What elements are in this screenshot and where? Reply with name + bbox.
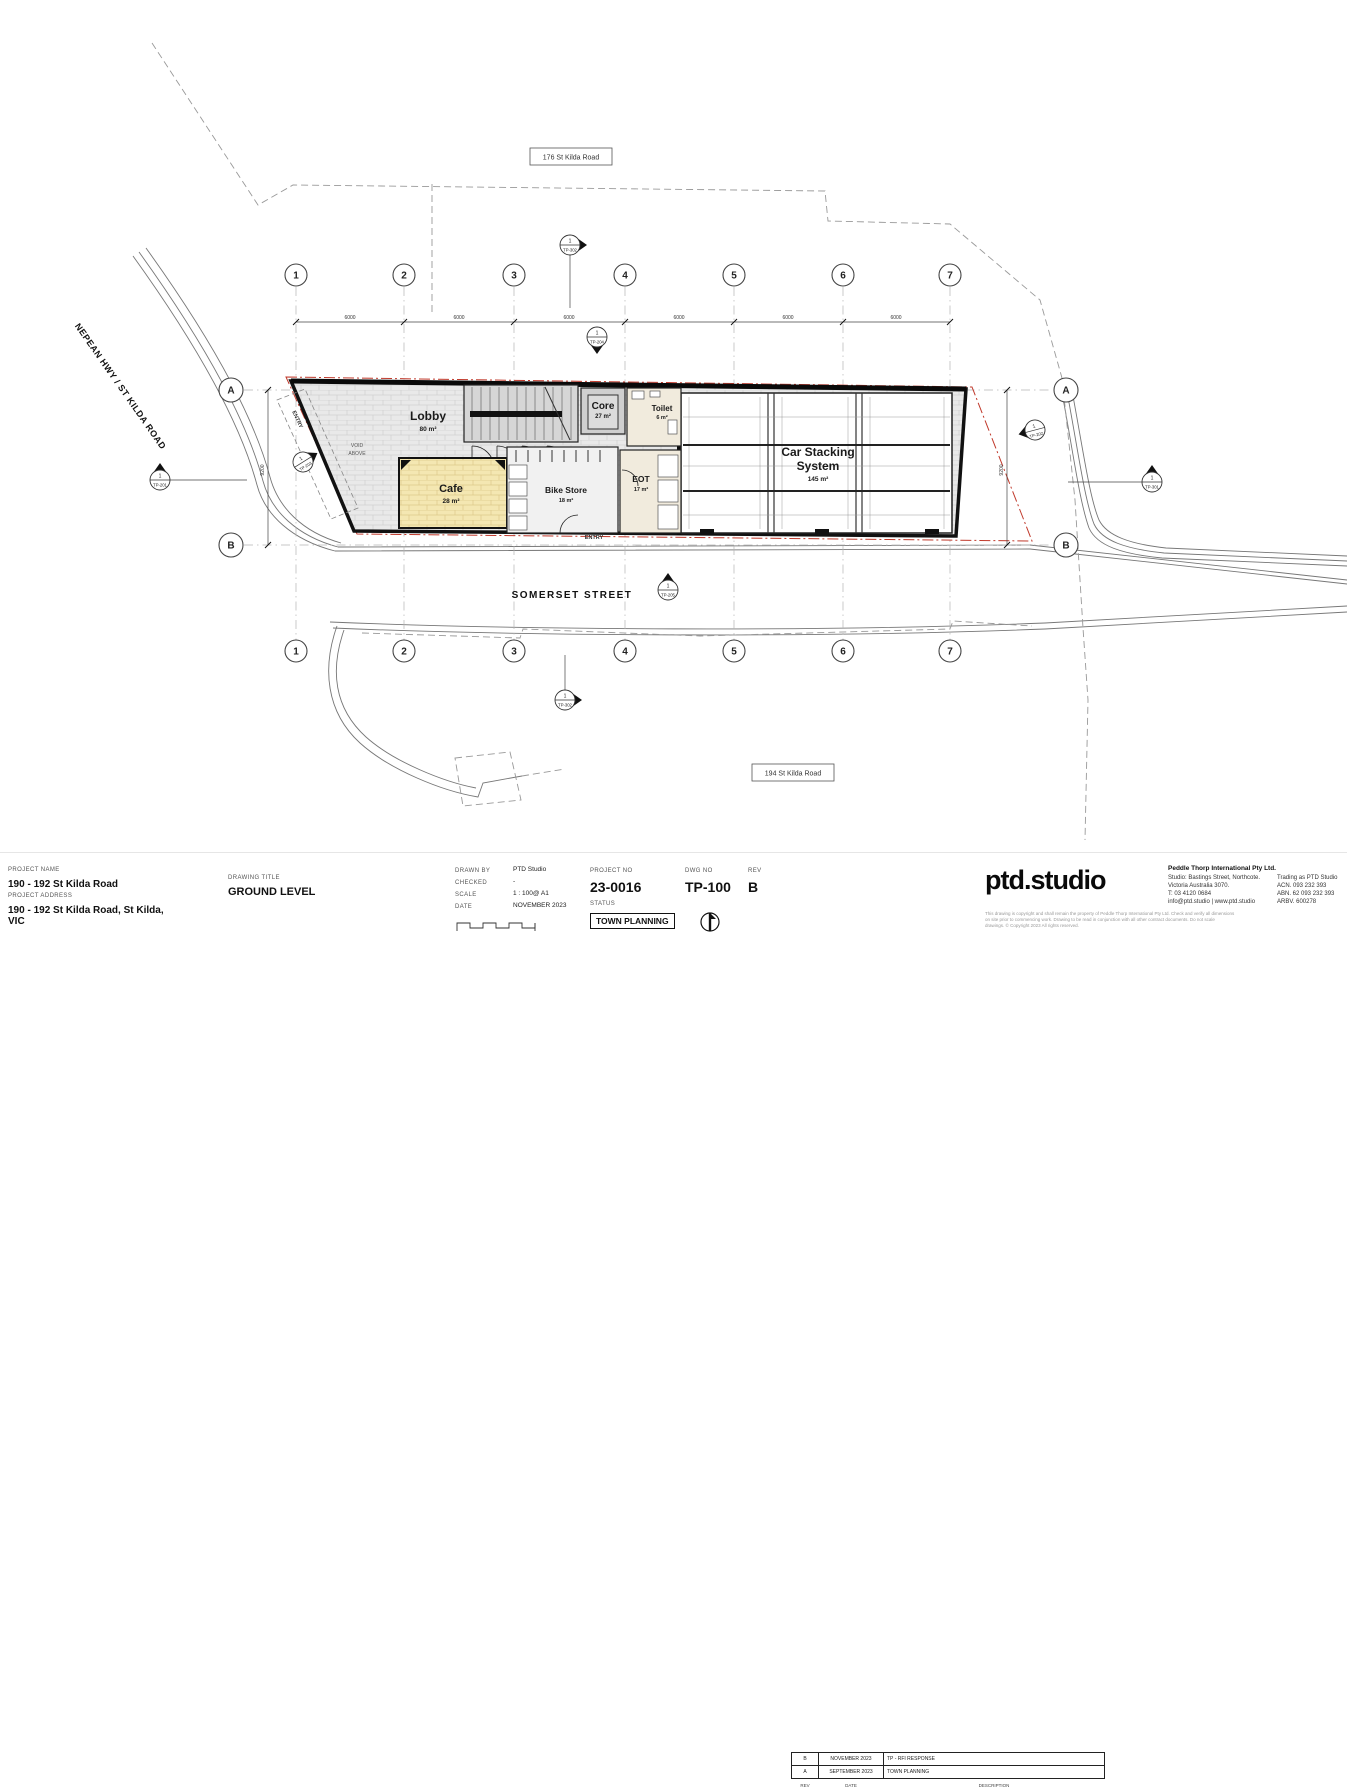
room-toilet xyxy=(627,388,681,446)
street-label-nepean: NEPEAN HWY / ST KILDA ROAD xyxy=(73,321,168,451)
room-label-car-stacking-1: Car Stacking xyxy=(781,445,854,459)
grid-bubble-3: 3 xyxy=(511,271,517,282)
company-acn: ACN. 093 232 393 xyxy=(1277,883,1326,889)
grid-bubble-A-right: A xyxy=(1062,386,1069,397)
dwg-no-label: DWG NO xyxy=(685,868,713,874)
marker-bottom: 1 TP-302 xyxy=(555,655,582,710)
dim-bay-6: 6000 xyxy=(890,315,901,321)
project-address-label: PROJECT ADDRESS xyxy=(8,893,72,899)
copyright-disclaimer: This drawing is copyright and shall rema… xyxy=(985,911,1235,929)
company-abn: ABN. 62 093 232 393 xyxy=(1277,891,1334,897)
marker-somerset: 1 TP-205 xyxy=(658,573,678,600)
road-somerset-street xyxy=(330,545,1347,635)
dim-depth-left: 9200 xyxy=(260,464,266,475)
rev-1-date: SEPTEMBER 2023 xyxy=(819,1766,884,1779)
room-area-car-stacking: 145 m² xyxy=(808,476,829,483)
svg-text:1: 1 xyxy=(596,331,599,337)
marker-top-dim: 1 TP-204 xyxy=(587,327,607,354)
marker-left: 1 TP-201 xyxy=(150,463,247,490)
svg-text:1: 1 xyxy=(1151,476,1154,482)
company-line-3: T: 03 4120 0684 xyxy=(1168,891,1211,897)
ptd-studio-logo: ptd.studio xyxy=(985,865,1105,896)
rev-1-desc: TOWN PLANNING xyxy=(884,1766,1105,1779)
grid-bubble-B-left: B xyxy=(227,541,234,552)
drawing-sheet: Lobby 80 m² Core 27 m² Toilet 6 m² Cafe … xyxy=(0,0,1347,940)
room-area-cafe: 28 m² xyxy=(443,498,461,505)
entry-label-west: ENTRY xyxy=(290,410,303,430)
dwg-no-value: TP-100 xyxy=(685,879,731,895)
marker-right-diag: 1 TP-202 xyxy=(1016,418,1047,444)
room-area-lobby: 80 m² xyxy=(420,426,438,433)
grid-bubble-7: 7 xyxy=(947,271,953,282)
dimension-top: 6000 6000 6000 6000 6000 6000 xyxy=(293,315,953,325)
room-label-car-stacking-2: System xyxy=(797,459,840,473)
drawn-by-value: PTD Studio xyxy=(513,866,546,873)
dimension-left: 9200 xyxy=(260,387,271,548)
drawing-title-value: GROUND LEVEL xyxy=(228,886,315,898)
company-trading: Trading as PTD Studio xyxy=(1277,875,1337,881)
drawing-title-label: DRAWING TITLE xyxy=(228,875,280,881)
dimension-right: 9200 xyxy=(999,387,1010,548)
checked-value: - xyxy=(513,878,515,885)
grid-bubble-A-left: A xyxy=(227,386,234,397)
rev-0-desc: TP - RFI RESPONSE xyxy=(884,1753,1105,1766)
grid-bubble-4b: 4 xyxy=(622,647,628,658)
dim-bay-3: 6000 xyxy=(563,315,574,321)
grid-bubble-1b: 1 xyxy=(293,647,299,658)
grid-bubble-5: 5 xyxy=(731,271,737,282)
rev-0-date: NOVEMBER 2023 xyxy=(819,1753,884,1766)
dim-depth-right: 9200 xyxy=(999,464,1005,475)
company-line-2: Victoria Australia 3070. xyxy=(1168,883,1229,889)
checked-label: CHECKED xyxy=(455,880,487,886)
scale-value: 1 : 100@ A1 xyxy=(513,890,549,897)
date-label: DATE xyxy=(455,904,472,910)
room-label-toilet: Toilet xyxy=(652,404,673,413)
rev-footer-date: DATE xyxy=(819,1779,884,1791)
grid-bubble-7b: 7 xyxy=(947,647,953,658)
svg-text:TP-302: TP-302 xyxy=(558,703,572,708)
company-line-1: Studio: Bastings Street, Northcote. xyxy=(1168,875,1260,881)
grid-bubbles-bottom: 1 2 3 4 5 6 7 xyxy=(285,640,961,662)
revision-row: B NOVEMBER 2023 TP - RFI RESPONSE xyxy=(792,1753,1105,1766)
svg-text:176 St Kilda Road: 176 St Kilda Road xyxy=(543,155,600,162)
entry-label-south: ENTRY xyxy=(585,535,604,541)
company-name: Peddle Thorp International Pty Ltd. xyxy=(1168,865,1276,872)
street-label-somerset: SOMERSET STREET xyxy=(512,590,633,601)
svg-text:TP-301: TP-301 xyxy=(1145,485,1159,490)
grid-bubble-6: 6 xyxy=(840,271,846,282)
grid-bubble-6b: 6 xyxy=(840,647,846,658)
stair-core xyxy=(464,385,578,442)
svg-text:1: 1 xyxy=(569,239,572,245)
room-label-core: Core xyxy=(592,401,615,412)
project-address-value: 190 - 192 St Kilda Road, St Kilda, VIC xyxy=(8,905,178,927)
rev-label: REV xyxy=(748,868,762,874)
room-label-eot: EOT xyxy=(632,474,650,484)
company-arbv: ARBV. 600278 xyxy=(1277,899,1316,905)
svg-text:TP-205: TP-205 xyxy=(661,593,675,598)
date-value: NOVEMBER 2023 xyxy=(513,902,566,909)
revision-footer: REV DATE DESCRIPTION xyxy=(792,1779,1105,1791)
rev-0-rev: B xyxy=(792,1753,819,1766)
room-area-core: 27 m² xyxy=(595,413,611,420)
room-area-eot: 17 m² xyxy=(634,486,649,493)
project-name-value: 190 - 192 St Kilda Road xyxy=(8,879,118,890)
room-area-toilet: 6 m² xyxy=(656,414,667,421)
room-label-lobby: Lobby xyxy=(410,409,446,423)
rev-footer-rev: REV xyxy=(792,1779,819,1791)
room-area-bike-store: 18 m² xyxy=(559,497,574,504)
grid-bubble-3b: 3 xyxy=(511,647,517,658)
svg-text:TP-201: TP-201 xyxy=(153,483,167,488)
grid-bubbles-top: 1 2 3 4 5 6 7 xyxy=(285,264,961,286)
grid-bubble-1: 1 xyxy=(293,271,299,282)
rev-value: B xyxy=(748,879,758,895)
lot-label-194: 194 St Kilda Road xyxy=(752,764,834,781)
title-block: PROJECT NAME 190 - 192 St Kilda Road PRO… xyxy=(0,852,1347,941)
room-label-bike-store: Bike Store xyxy=(545,485,587,495)
svg-text:194 St Kilda Road: 194 St Kilda Road xyxy=(765,771,822,778)
revision-row: A SEPTEMBER 2023 TOWN PLANNING xyxy=(792,1766,1105,1779)
road-lower-left xyxy=(329,626,522,797)
svg-text:1: 1 xyxy=(159,474,162,480)
company-line-4: info@ptd.studio | www.ptd.studio xyxy=(1168,899,1255,905)
drawn-by-label: DRAWN BY xyxy=(455,868,490,874)
project-no-label: PROJECT NO xyxy=(590,868,633,874)
dim-bay-5: 6000 xyxy=(782,315,793,321)
status-value: TOWN PLANNING xyxy=(590,913,675,929)
grid-bubble-2: 2 xyxy=(401,271,407,282)
marker-entry-diag: 1 TP-203 xyxy=(289,445,322,476)
project-name-label: PROJECT NAME xyxy=(8,867,60,873)
dim-bay-1: 6000 xyxy=(344,315,355,321)
dim-bay-4: 6000 xyxy=(673,315,684,321)
status-label: STATUS xyxy=(590,901,615,907)
site-plan: Lobby 80 m² Core 27 m² Toilet 6 m² Cafe … xyxy=(0,0,1347,852)
road-st-kilda-east xyxy=(1060,380,1347,566)
grid-bubble-5b: 5 xyxy=(731,647,737,658)
scale-bar xyxy=(455,916,550,932)
grid-bubble-4: 4 xyxy=(622,271,628,282)
void-above-label-2: ABOVE xyxy=(348,451,366,457)
rev-footer-desc: DESCRIPTION xyxy=(884,1779,1105,1791)
project-no-value: 23-0016 xyxy=(590,879,641,895)
void-above-label-1: VOID xyxy=(351,443,364,449)
marker-top: 1 TP-302 xyxy=(560,235,587,308)
svg-text:TP-204: TP-204 xyxy=(590,340,604,345)
grid-bubble-2b: 2 xyxy=(401,647,407,658)
grid-bubble-B-right: B xyxy=(1062,541,1069,552)
north-arrow-icon xyxy=(698,909,722,935)
svg-text:1: 1 xyxy=(564,694,567,700)
room-eot xyxy=(620,450,681,533)
rev-1-rev: A xyxy=(792,1766,819,1779)
scale-label: SCALE xyxy=(455,892,477,898)
svg-text:1: 1 xyxy=(667,584,670,590)
room-label-cafe: Cafe xyxy=(439,483,463,495)
revision-table: B NOVEMBER 2023 TP - RFI RESPONSE A SEPT… xyxy=(791,1752,1105,1791)
dim-bay-2: 6000 xyxy=(453,315,464,321)
svg-text:TP-302: TP-302 xyxy=(563,248,577,253)
lot-label-176: 176 St Kilda Road xyxy=(530,148,612,165)
